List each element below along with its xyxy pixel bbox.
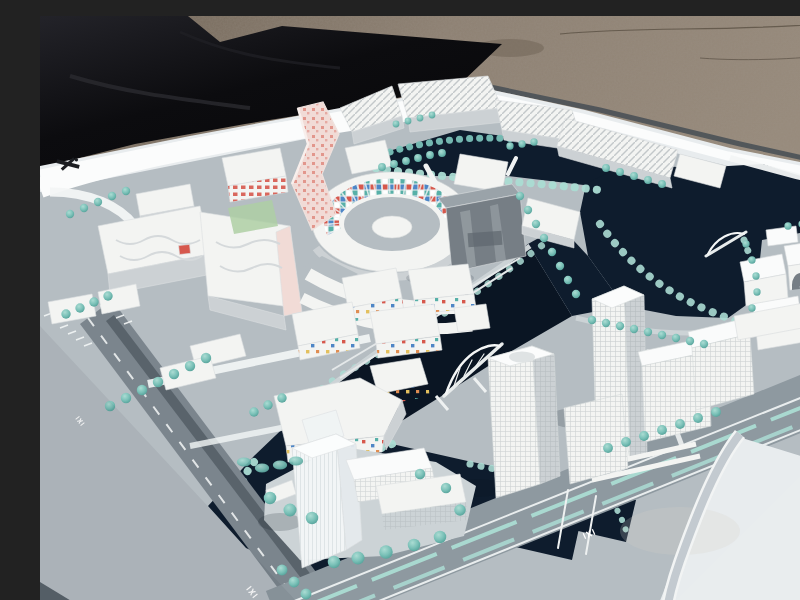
model-scene [40,16,800,600]
red-sign [179,244,191,254]
architectural-model-photo: Photograph of a white architectural scal… [40,16,800,600]
